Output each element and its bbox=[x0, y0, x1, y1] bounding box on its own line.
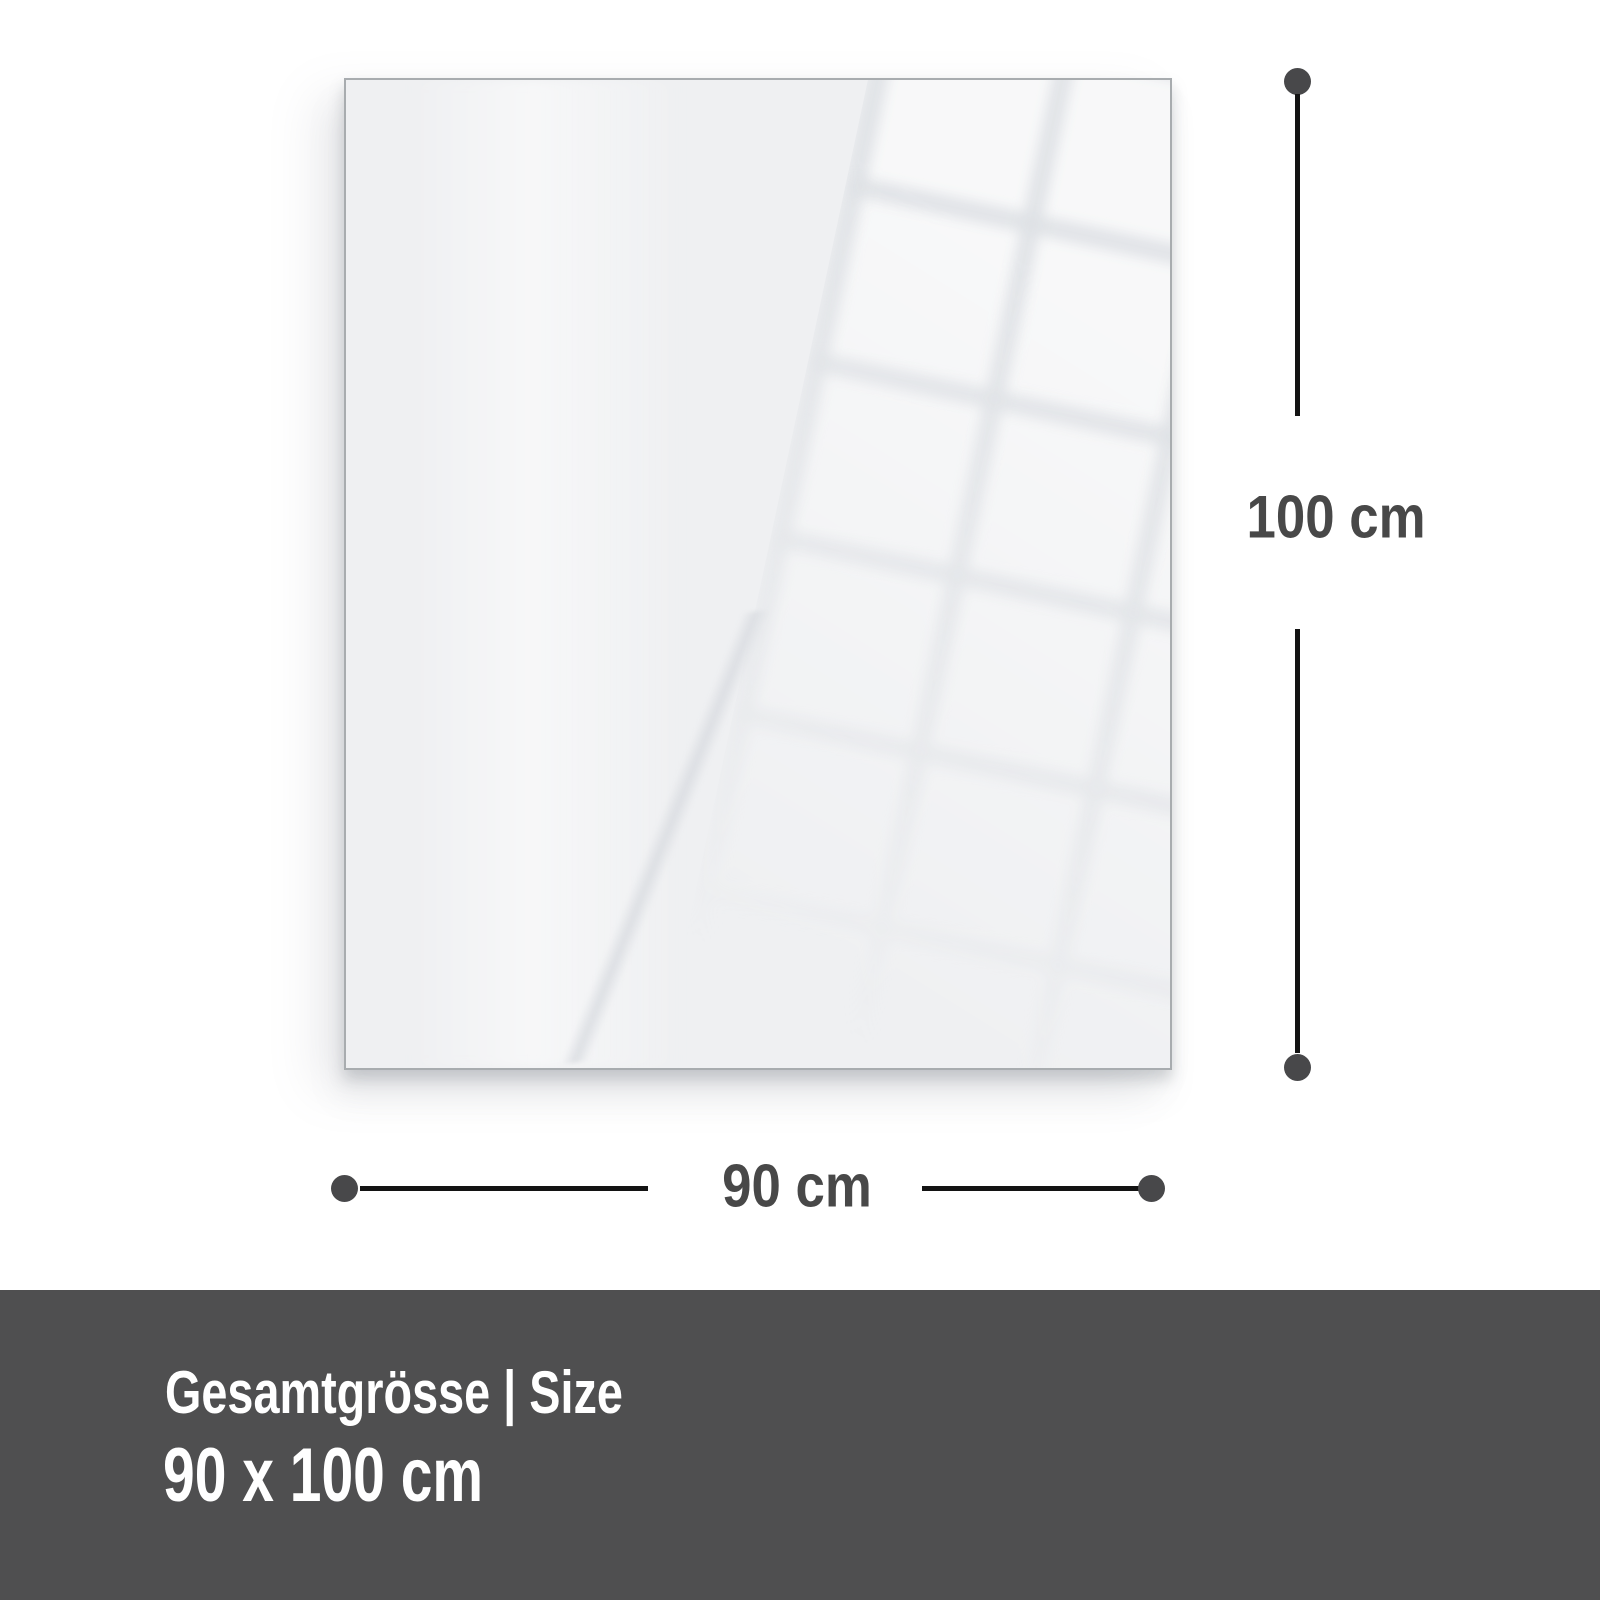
dimension-endpoint-dot-left bbox=[331, 1175, 358, 1202]
size-info-band: Gesamtgrösse | Size 90 x 100 cm bbox=[0, 1290, 1600, 1600]
window-grid-reflection bbox=[619, 78, 1172, 1070]
dimension-endpoint-dot-bottom bbox=[1284, 1054, 1311, 1081]
glass-panel bbox=[344, 78, 1172, 1070]
dimension-endpoint-dot-right bbox=[1138, 1175, 1165, 1202]
dimension-line-segment-right bbox=[922, 1186, 1140, 1191]
height-dimension-label: 100 cm bbox=[1246, 483, 1425, 552]
dimension-line-segment-upper bbox=[1295, 94, 1300, 416]
dimension-line-segment-lower bbox=[1295, 629, 1300, 1053]
size-band-value: 90 x 100 cm bbox=[163, 1432, 483, 1519]
width-dimension-label: 90 cm bbox=[722, 1152, 872, 1221]
dimension-line-segment-left bbox=[360, 1186, 648, 1191]
dimension-endpoint-dot-top bbox=[1284, 68, 1311, 95]
size-band-title: Gesamtgrösse | Size bbox=[165, 1358, 623, 1427]
product-size-diagram: 100 cm 90 cm Gesamtgrösse | Size 90 x 10… bbox=[0, 0, 1600, 1600]
